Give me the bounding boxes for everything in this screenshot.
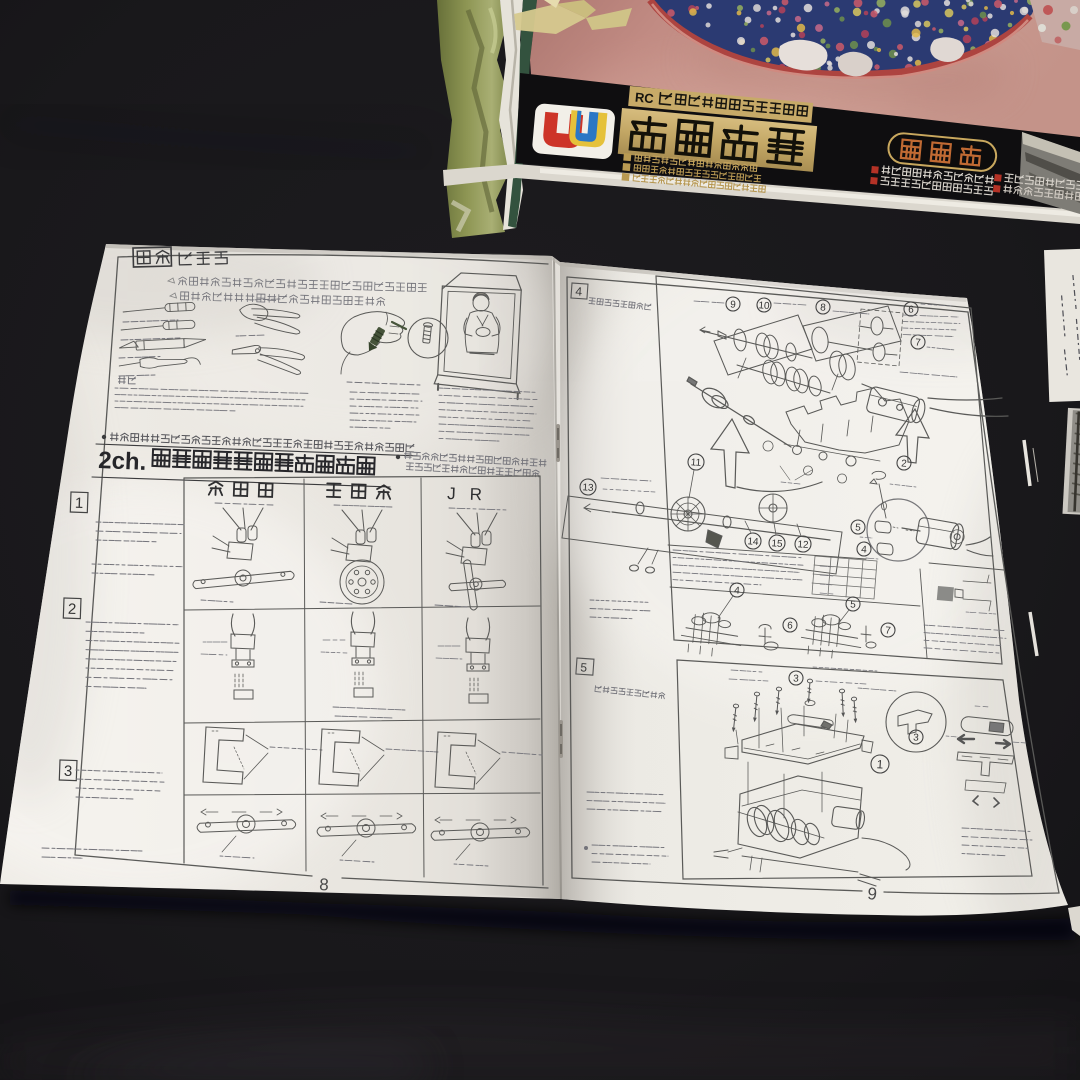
svg-text:JR: JR (447, 484, 496, 505)
svg-text:12: 12 (797, 539, 809, 551)
svg-text:2: 2 (68, 601, 77, 618)
svg-text:10: 10 (758, 300, 770, 312)
svg-text:8: 8 (319, 875, 329, 894)
svg-text:RC: RC (634, 90, 655, 107)
svg-text:3: 3 (64, 763, 73, 780)
svg-text:15: 15 (771, 538, 783, 550)
svg-text:5: 5 (580, 660, 588, 674)
svg-text:14: 14 (747, 536, 759, 548)
svg-text:11: 11 (690, 457, 702, 469)
svg-text:13: 13 (582, 482, 594, 494)
svg-text:2ch.: 2ch. (98, 447, 147, 476)
svg-text:4: 4 (575, 284, 583, 298)
svg-text:1: 1 (876, 757, 884, 771)
svg-text:9: 9 (867, 884, 878, 904)
svg-text:1: 1 (75, 495, 84, 512)
